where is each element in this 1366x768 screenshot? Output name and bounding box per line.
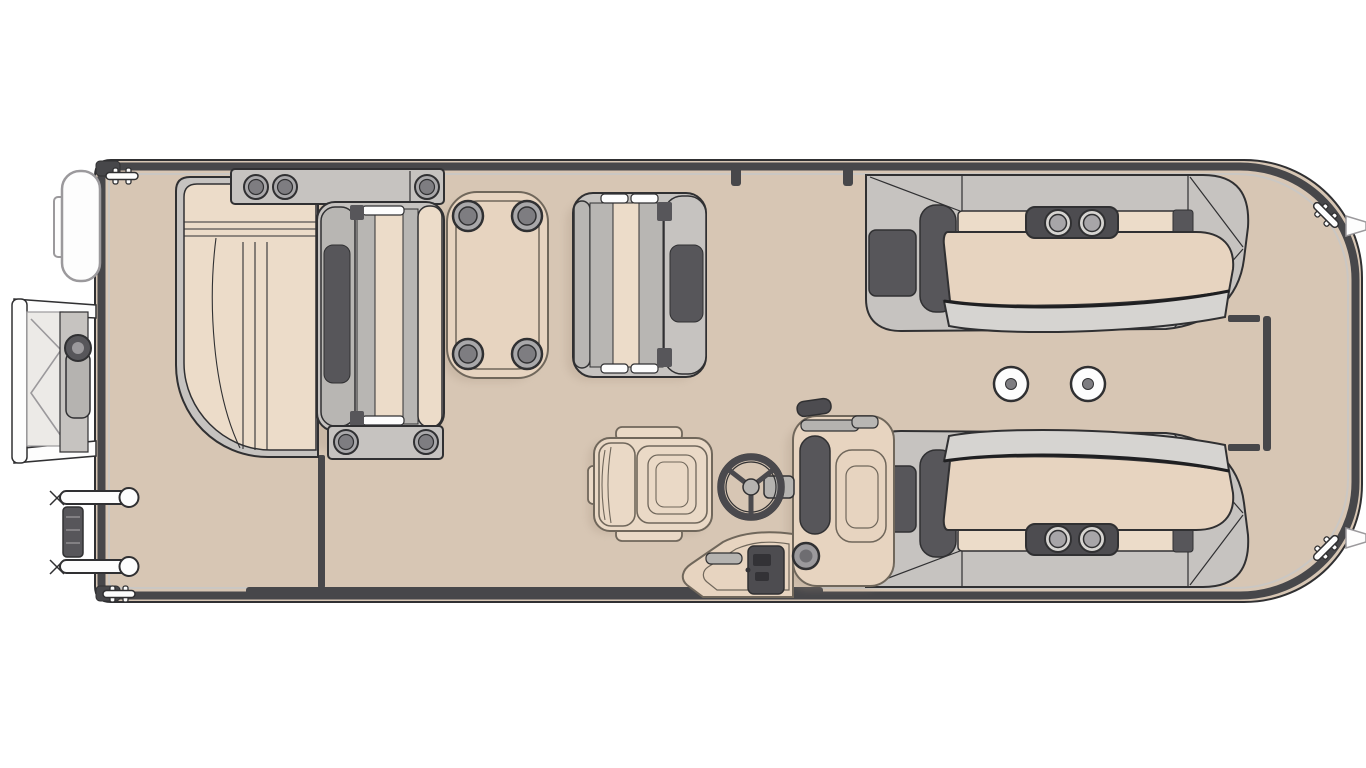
cupholder-icon: [334, 430, 358, 454]
interior-partition: [318, 455, 325, 588]
cupholder-icon: [415, 175, 439, 199]
bow-fender-pod: [54, 171, 100, 281]
headrest-slot: [631, 194, 658, 203]
helm-grab-rail: [706, 553, 742, 564]
ladder-frame: [27, 312, 63, 446]
bench-arm-right: [418, 206, 442, 427]
cupholder-icon: [273, 175, 297, 199]
headrest-slot: [601, 364, 628, 373]
wheel-hub: [743, 479, 759, 495]
forward-bench: [317, 202, 444, 459]
helm-windscreen-pad: [800, 436, 830, 534]
ladder-side-rail: [12, 299, 27, 463]
mid-bench-backrest-pad: [670, 245, 703, 322]
side-gate-post-right: [843, 165, 853, 186]
hinge-spring: [63, 507, 83, 557]
captains-chair: [588, 427, 712, 541]
mid-bench: [573, 193, 706, 377]
headrest-slot: [631, 364, 658, 373]
table-cupholder-icon: [512, 201, 542, 231]
chaise-cushion: [184, 184, 316, 450]
table-cupholder-icon: [512, 339, 542, 369]
floor-mount-icon: [994, 367, 1028, 401]
headrest-slot: [362, 206, 404, 215]
bench-rear-console: [328, 426, 443, 459]
bow-armrest-console: [231, 169, 444, 204]
mid-bench-cushion: [613, 203, 639, 367]
pontoon-floorplan-stage: Pontoon boat floor plan (top view): [0, 0, 1366, 768]
pontoon-boat-floorplan: Pontoon boat floor plan (top view): [0, 0, 1366, 768]
helm-vent: [801, 420, 859, 431]
stern-lounge-port: [866, 175, 1248, 332]
stern-lounge-starboard: [866, 430, 1248, 587]
helm-control-panel: [748, 546, 784, 594]
bench-backrest-pad: [324, 245, 350, 383]
floor-mount-icon: [1071, 367, 1105, 401]
cupholder-icon: [414, 430, 438, 454]
cupholder-icon: [244, 175, 268, 199]
headrest-slot: [601, 194, 628, 203]
table-cupholder-icon: [453, 339, 483, 369]
mid-bench-arm-left: [574, 201, 590, 368]
cocktail-table: [447, 192, 548, 378]
boarding-ladder: [12, 299, 96, 463]
bow-chaise-lounge: [176, 177, 318, 457]
headrest-slot: [362, 416, 404, 425]
bench-cushion: [375, 209, 403, 424]
side-gate-post-left: [731, 165, 741, 186]
table-cupholder-icon: [453, 201, 483, 231]
